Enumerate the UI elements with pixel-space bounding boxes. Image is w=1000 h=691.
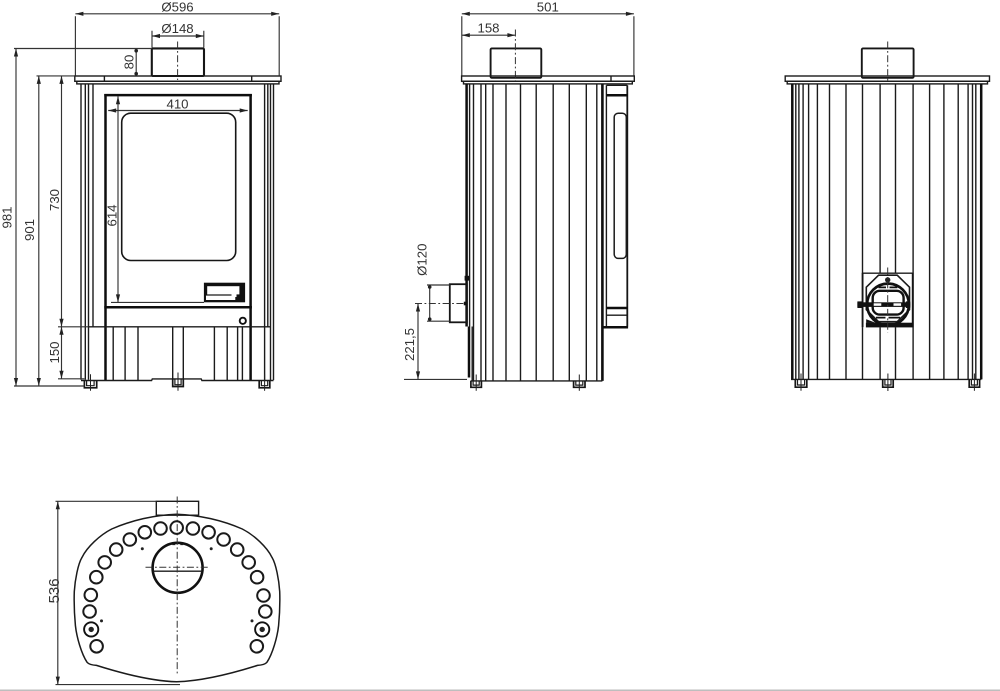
svg-text:158: 158 <box>477 20 499 35</box>
svg-text:730: 730 <box>47 189 62 211</box>
svg-text:150: 150 <box>47 341 62 363</box>
svg-text:981: 981 <box>0 206 15 228</box>
svg-text:901: 901 <box>22 219 37 241</box>
svg-text:536: 536 <box>46 578 63 603</box>
svg-text:80: 80 <box>121 55 136 70</box>
svg-text:Ø596: Ø596 <box>161 0 193 15</box>
svg-text:410: 410 <box>166 96 188 111</box>
svg-text:Ø148: Ø148 <box>161 21 193 36</box>
svg-text:221,5: 221,5 <box>402 328 417 361</box>
svg-text:501: 501 <box>537 0 559 15</box>
svg-text:Ø120: Ø120 <box>415 244 430 276</box>
svg-text:614: 614 <box>105 204 120 226</box>
